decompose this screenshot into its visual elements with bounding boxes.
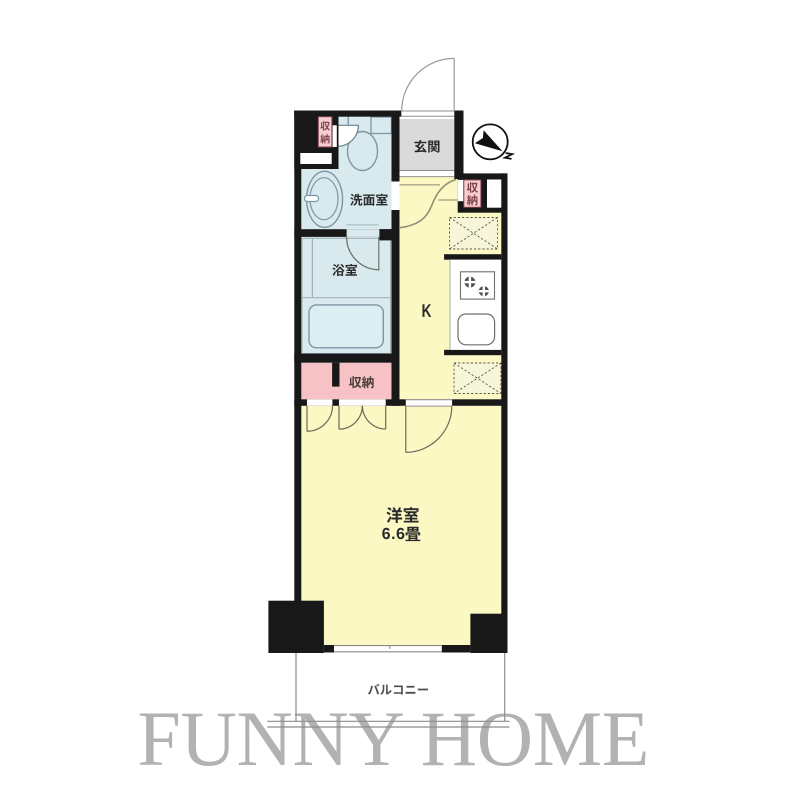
svg-text:FUNNY HOME: FUNNY HOME: [137, 695, 649, 782]
